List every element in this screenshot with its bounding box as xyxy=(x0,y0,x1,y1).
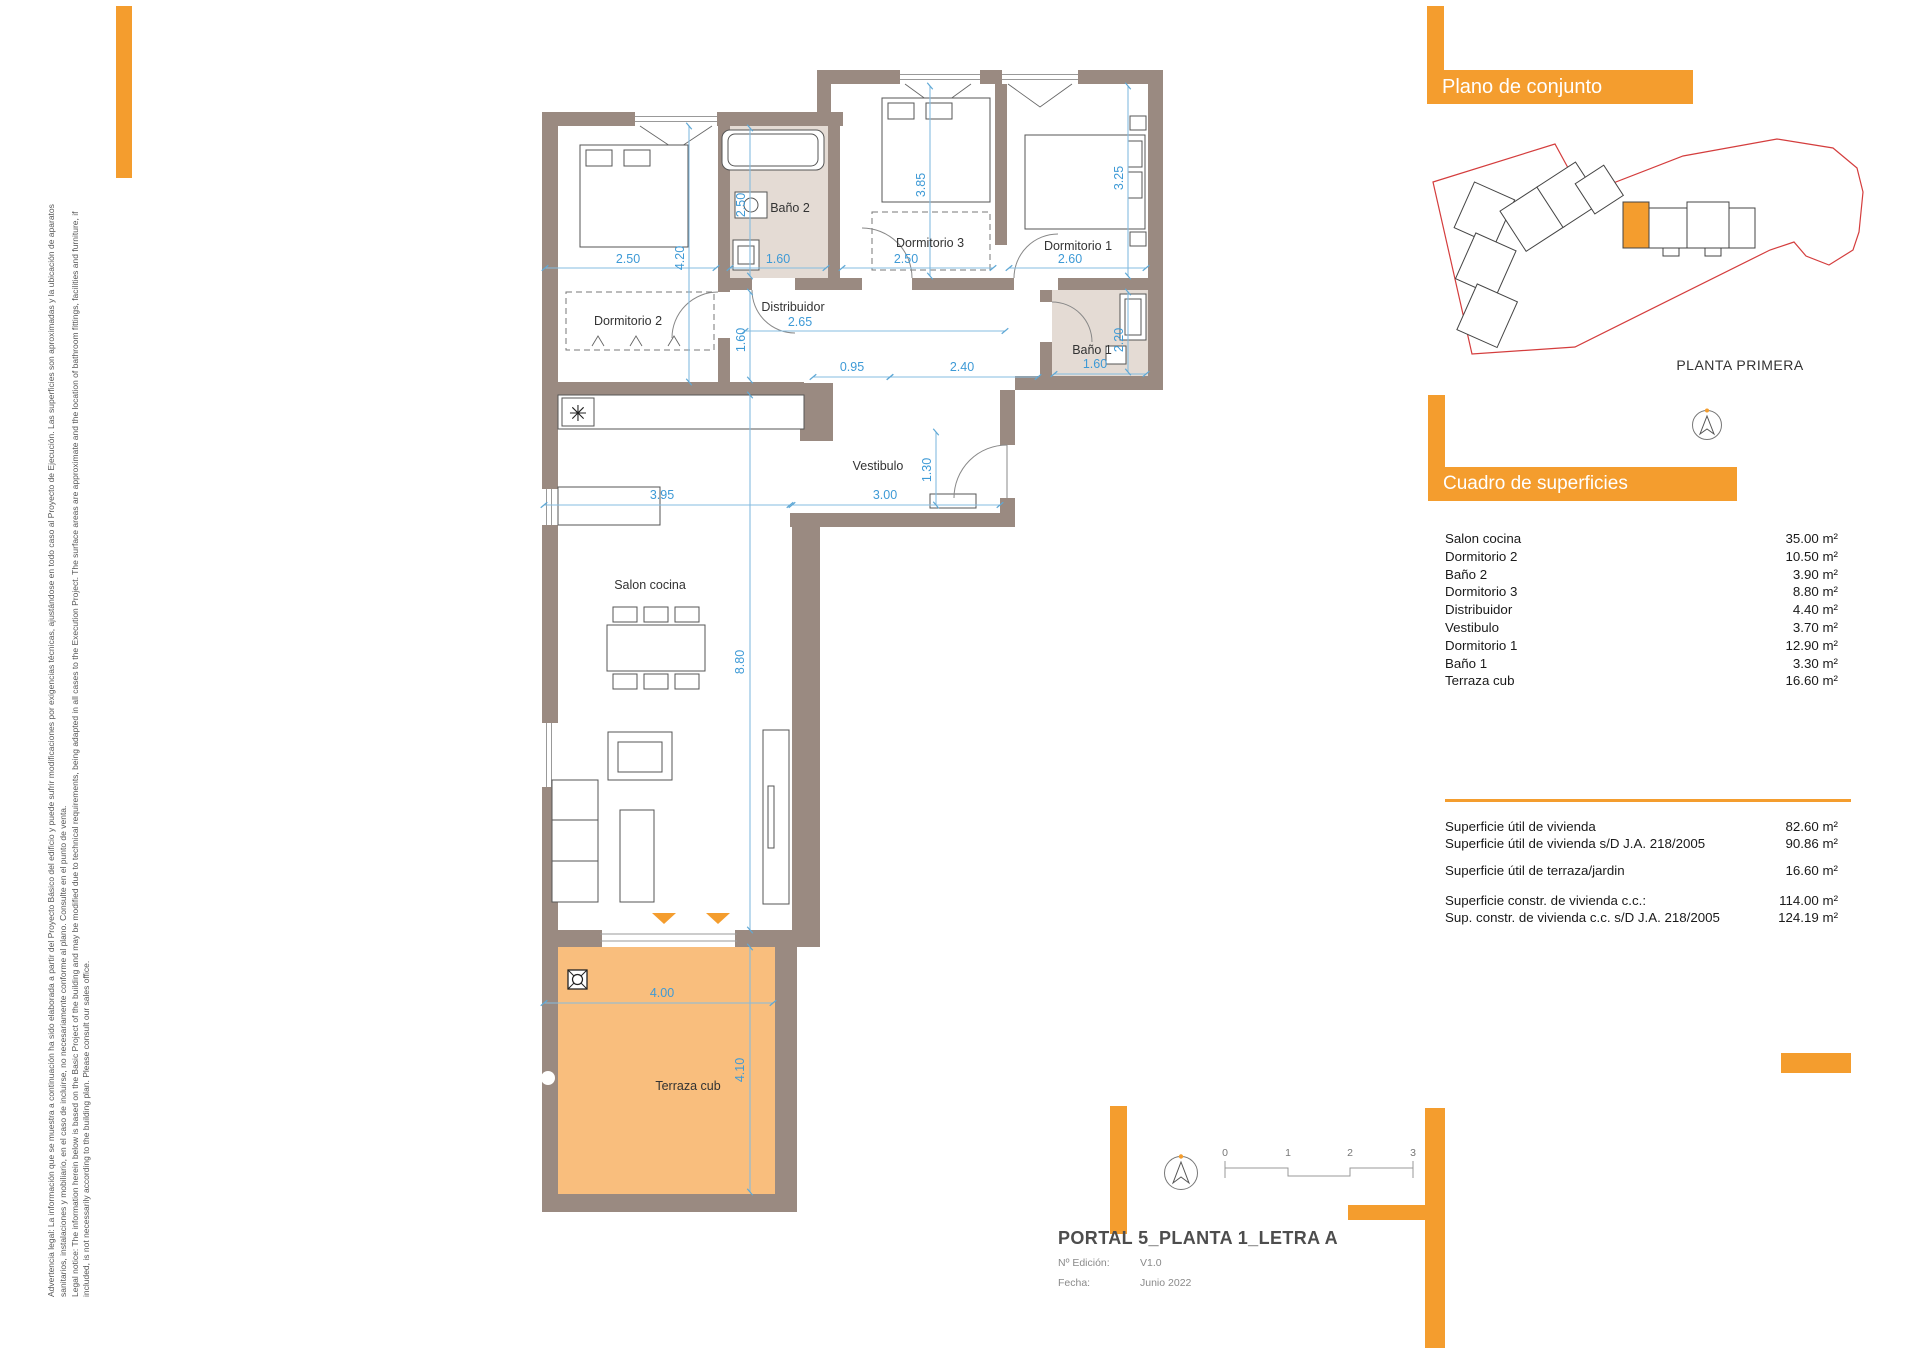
floor-plan: ✳ xyxy=(530,55,1180,1225)
room-label-bano1: Baño 1 xyxy=(1072,343,1112,357)
row-value: 35.00 m² xyxy=(1786,530,1838,548)
table-row: Terraza cub16.60 m² xyxy=(1445,672,1838,690)
total-row: Superficie útil de vivienda82.60 m² xyxy=(1445,818,1838,835)
date-label: Fecha: xyxy=(1058,1277,1140,1289)
table-row: Dormitorio 38.80 m² xyxy=(1445,583,1838,601)
total-value: 114.00 m² xyxy=(1779,892,1838,909)
row-label: Dormitorio 3 xyxy=(1445,583,1517,601)
row-value: 4.40 m² xyxy=(1793,601,1838,619)
total-row: Superficie útil de terraza/jardin16.60 m… xyxy=(1445,862,1838,879)
row-value: 3.90 m² xyxy=(1793,566,1838,584)
scale-bar: 0 1 2 3 xyxy=(1222,1147,1416,1178)
dim-bano2-w: 1.60 xyxy=(766,252,790,266)
row-label: Salon cocina xyxy=(1445,530,1521,548)
room-label-bano2: Baño 2 xyxy=(770,201,810,215)
room-label-dormitorio1: Dormitorio 1 xyxy=(1044,239,1112,253)
row-value: 8.80 m² xyxy=(1793,583,1838,601)
dim-salon-h: 8.80 xyxy=(733,650,747,674)
date-row: Fecha: Junio 2022 xyxy=(1058,1277,1418,1289)
total-value: 124.19 m² xyxy=(1778,909,1838,926)
room-label-dormitorio3: Dormitorio 3 xyxy=(896,236,964,250)
orange-bar-superficies xyxy=(1428,395,1445,467)
edition-label: Nº Edición: xyxy=(1058,1257,1140,1269)
dim-salon-w: 3.95 xyxy=(650,488,674,502)
total-label: Superficie útil de vivienda xyxy=(1445,818,1596,835)
surfaces-banner: Cuadro de superficies xyxy=(1428,467,1737,501)
row-value: 3.30 m² xyxy=(1793,655,1838,673)
total-row: Superficie constr. de vivienda c.c.:114.… xyxy=(1445,892,1838,909)
table-row: Distribuidor4.40 m² xyxy=(1445,601,1838,619)
dim-dorm1-h: 3.25 xyxy=(1112,166,1126,190)
row-value: 10.50 m² xyxy=(1786,548,1838,566)
total-label: Superficie útil de terraza/jardin xyxy=(1445,862,1625,879)
scale-tick-0: 0 xyxy=(1222,1147,1228,1159)
row-label: Baño 2 xyxy=(1445,566,1487,584)
sliding-door xyxy=(600,913,737,941)
orange-bar-top-right xyxy=(1427,6,1444,70)
table-row: Dormitorio 112.90 m² xyxy=(1445,637,1838,655)
vestibule-mat xyxy=(930,494,976,508)
tv-unit xyxy=(763,730,789,904)
total-row: Sup. constr. de vivienda c.c. s/D J.A. 2… xyxy=(1445,909,1838,926)
room-label-salon: Salon cocina xyxy=(614,578,686,592)
highlighted-unit xyxy=(1623,202,1649,248)
drain-icon xyxy=(568,970,587,989)
orange-bar-right-mid xyxy=(1781,1053,1851,1073)
dining-table xyxy=(607,607,705,689)
dim-terraza-h: 4.10 xyxy=(733,1058,747,1082)
dim-distribuidor-w: 2.65 xyxy=(788,315,812,329)
coffee-table xyxy=(620,810,654,902)
dim-dorm2-h: 4.20 xyxy=(673,246,687,270)
row-value: 3.70 m² xyxy=(1793,619,1838,637)
table-row: Salon cocina35.00 m² xyxy=(1445,530,1838,548)
row-label: Baño 1 xyxy=(1445,655,1487,673)
row-label: Dormitorio 1 xyxy=(1445,637,1517,655)
scale-bar-group: 0 1 2 3 xyxy=(1155,1140,1430,1195)
total-value: 82.60 m² xyxy=(1786,818,1838,835)
dim-distribuidor-h: 1.60 xyxy=(734,328,748,352)
dim-pasillo1: 0.95 xyxy=(840,360,864,374)
dim-dorm2-w: 2.50 xyxy=(616,252,640,266)
legal-line-2: sanitarios, instalaciones y mobiliario, … xyxy=(58,59,70,1297)
orange-separator-line xyxy=(1445,799,1851,802)
total-label: Superficie constr. de vivienda c.c.: xyxy=(1445,892,1646,909)
row-label: Terraza cub xyxy=(1445,672,1514,690)
total-value: 16.60 m² xyxy=(1786,862,1838,879)
dim-vestibulo-w: 3.00 xyxy=(873,488,897,502)
dim-pasillo2: 2.40 xyxy=(950,360,974,374)
room-label-terraza: Terraza cub xyxy=(655,1079,720,1093)
edition-value: V1.0 xyxy=(1140,1257,1162,1269)
dim-dorm1-w: 2.60 xyxy=(1058,252,1082,266)
dim-bano2-h: 2.50 xyxy=(734,193,748,217)
edition-row: Nº Edición: V1.0 xyxy=(1058,1257,1418,1269)
orange-bar-bottom-right-horiz xyxy=(1348,1205,1425,1220)
dim-bano1-h: 2.20 xyxy=(1112,328,1126,352)
surfaces-title: Cuadro de superficies xyxy=(1443,473,1628,495)
row-value: 16.60 m² xyxy=(1786,672,1838,690)
legal-disclaimer: Advertencia legal: La información que se… xyxy=(46,59,96,1297)
sofa xyxy=(552,780,598,902)
dim-dorm3-w: 2.50 xyxy=(894,252,918,266)
floor-name-label: PLANTA PRIMERA xyxy=(1640,357,1840,373)
building-cluster-middle xyxy=(1500,150,1623,256)
dim-terraza-w: 4.00 xyxy=(650,986,674,1000)
north-compass-top xyxy=(1688,406,1726,444)
slider-arrow-left xyxy=(652,913,676,924)
total-label: Sup. constr. de vivienda c.c. s/D J.A. 2… xyxy=(1445,909,1720,926)
building-cluster-right xyxy=(1623,202,1755,256)
site-plan xyxy=(1425,132,1880,367)
legal-line-4: included, is not necessarily according t… xyxy=(81,59,93,1297)
dim-vestibulo-door: 1.30 xyxy=(920,458,934,482)
dim-dorm3-h: 3.85 xyxy=(914,173,928,197)
site-plan-title: Plano de conjunto xyxy=(1442,76,1602,99)
legal-line-3: Legal notice: The information herein bel… xyxy=(70,59,82,1297)
title-block: PORTAL 5_PLANTA 1_LETRA A Nº Edición: V1… xyxy=(1058,1228,1418,1289)
site-plan-banner: Plano de conjunto xyxy=(1427,70,1693,104)
row-label: Distribuidor xyxy=(1445,601,1512,619)
scale-tick-3: 3 xyxy=(1410,1147,1416,1159)
slider-arrow-right xyxy=(706,913,730,924)
row-label: Dormitorio 2 xyxy=(1445,548,1517,566)
surface-totals: Superficie útil de vivienda82.60 m² Supe… xyxy=(1445,818,1838,926)
surfaces-table: Salon cocina35.00 m² Dormitorio 210.50 m… xyxy=(1445,530,1838,690)
dim-bano1-w: 1.60 xyxy=(1083,357,1107,371)
room-label-distribuidor: Distribuidor xyxy=(761,300,824,314)
terrace-wall-opening xyxy=(541,1071,555,1085)
table-row: Vestibulo3.70 m² xyxy=(1445,619,1838,637)
total-row: Superficie útil de vivienda s/D J.A. 218… xyxy=(1445,835,1838,852)
table-row: Dormitorio 210.50 m² xyxy=(1445,548,1838,566)
legal-line-1: Advertencia legal: La información que se… xyxy=(46,59,58,1297)
row-label: Vestibulo xyxy=(1445,619,1499,637)
orange-bar-top-left xyxy=(116,6,132,178)
room-label-vestibulo: Vestibulo xyxy=(853,459,904,473)
date-value: Junio 2022 xyxy=(1140,1277,1191,1289)
armchair xyxy=(608,732,672,780)
drawing-title: PORTAL 5_PLANTA 1_LETRA A xyxy=(1058,1228,1418,1249)
total-label: Superficie útil de vivienda s/D J.A. 218… xyxy=(1445,835,1705,852)
total-value: 90.86 m² xyxy=(1786,835,1838,852)
table-row: Baño 13.30 m² xyxy=(1445,655,1838,673)
row-value: 12.90 m² xyxy=(1786,637,1838,655)
room-label-dormitorio2: Dormitorio 2 xyxy=(594,314,662,328)
north-compass-bottom xyxy=(1165,1154,1198,1189)
scale-tick-1: 1 xyxy=(1285,1147,1291,1159)
cooktop-icon: ✳ xyxy=(569,401,587,426)
scale-tick-2: 2 xyxy=(1347,1147,1353,1159)
table-row: Baño 23.90 m² xyxy=(1445,566,1838,584)
